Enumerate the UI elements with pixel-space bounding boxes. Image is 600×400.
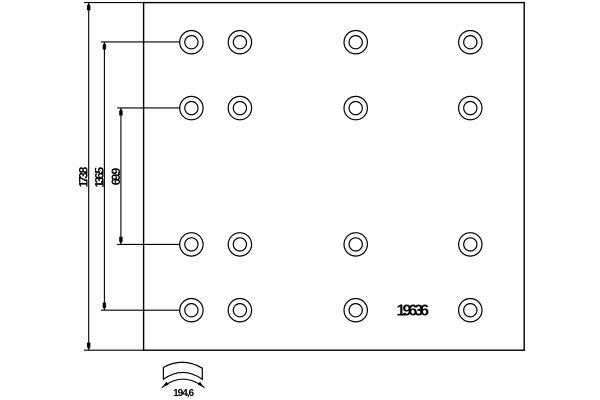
- svg-text:19636: 19636: [397, 303, 430, 320]
- svg-text:194,6: 194,6: [173, 388, 194, 399]
- svg-text:69.9: 69.9: [109, 167, 123, 185]
- svg-text:136.5: 136.5: [93, 167, 107, 188]
- svg-text:173.8: 173.8: [77, 166, 91, 187]
